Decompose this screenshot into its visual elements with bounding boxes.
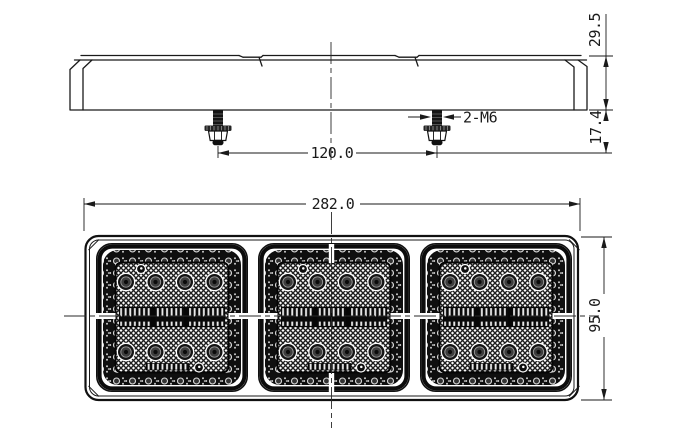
side-view: 120.0 2-M6 29.5 17.4 — [70, 13, 613, 162]
lens-section-left — [96, 244, 248, 391]
dim-bolt-spec: 2-M6 — [408, 109, 498, 127]
dim-overall-width: 282.0 — [84, 195, 580, 231]
lamp-body-profile — [70, 56, 587, 111]
dim-overall-height: 95.0 — [581, 237, 612, 400]
dim-overall-width-label: 282.0 — [312, 195, 355, 213]
front-view: 282.0 95.0 — [64, 195, 612, 428]
dim-bolt-length: 17.4 — [587, 110, 609, 153]
technical-drawing-canvas: 120.0 2-M6 29.5 17.4 — [0, 0, 689, 431]
dim-body-height-label: 29.5 — [586, 13, 604, 47]
dim-bolt-spec-label: 2-M6 — [463, 109, 498, 127]
dim-overall-height-label: 95.0 — [586, 298, 604, 333]
dim-bolt-spacing-label: 120.0 — [311, 144, 354, 162]
dim-body-height: 29.5 — [586, 13, 613, 110]
dim-bolt-spacing: 120.0 — [218, 144, 612, 162]
lens-section-center — [258, 244, 410, 391]
dim-bolt-length-label: 17.4 — [587, 110, 605, 145]
technical-drawing-page: 120.0 2-M6 29.5 17.4 — [0, 0, 689, 431]
mounting-bolt-right — [424, 110, 451, 145]
lens-section-right — [420, 244, 572, 391]
mounting-bolt-left — [205, 110, 232, 145]
